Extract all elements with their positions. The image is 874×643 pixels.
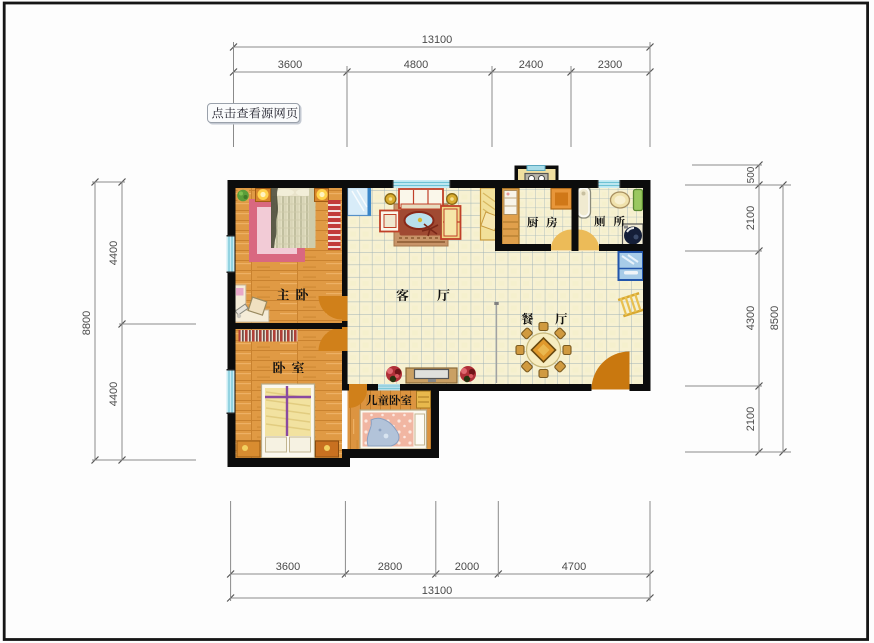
svg-text:4400: 4400 xyxy=(108,241,120,265)
svg-text:4700: 4700 xyxy=(562,561,586,573)
svg-text:4400: 4400 xyxy=(108,382,120,406)
svg-text:3600: 3600 xyxy=(278,59,302,71)
svg-text:2100: 2100 xyxy=(745,407,757,431)
svg-text:2100: 2100 xyxy=(745,206,757,230)
svg-text:3600: 3600 xyxy=(276,561,300,573)
svg-text:8500: 8500 xyxy=(769,306,781,330)
svg-text:13100: 13100 xyxy=(422,585,453,597)
svg-text:4300: 4300 xyxy=(745,306,757,330)
svg-text:2800: 2800 xyxy=(378,561,402,573)
svg-text:13100: 13100 xyxy=(422,34,453,46)
svg-text:2400: 2400 xyxy=(519,59,543,71)
svg-text:2300: 2300 xyxy=(598,59,622,71)
svg-text:8800: 8800 xyxy=(81,311,93,335)
svg-text:2000: 2000 xyxy=(455,561,479,573)
svg-text:4800: 4800 xyxy=(404,59,428,71)
svg-text:500: 500 xyxy=(746,166,757,183)
